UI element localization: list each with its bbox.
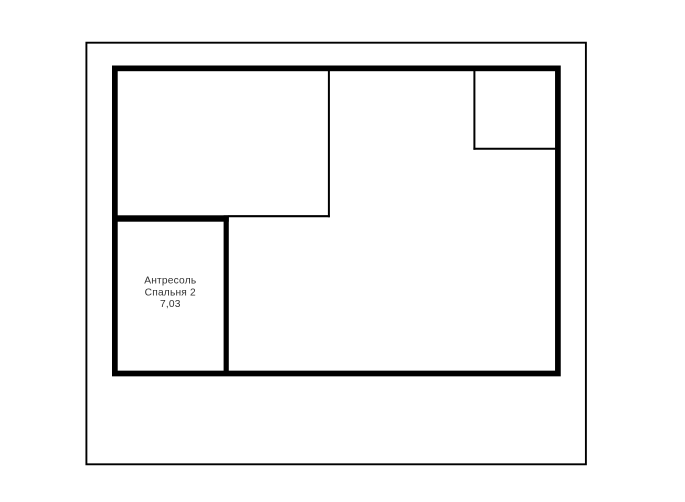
svg-text:Антресоль: Антресоль [144,275,196,286]
svg-text:Спальня 2: Спальня 2 [145,287,196,298]
svg-text:7,03: 7,03 [160,299,181,310]
